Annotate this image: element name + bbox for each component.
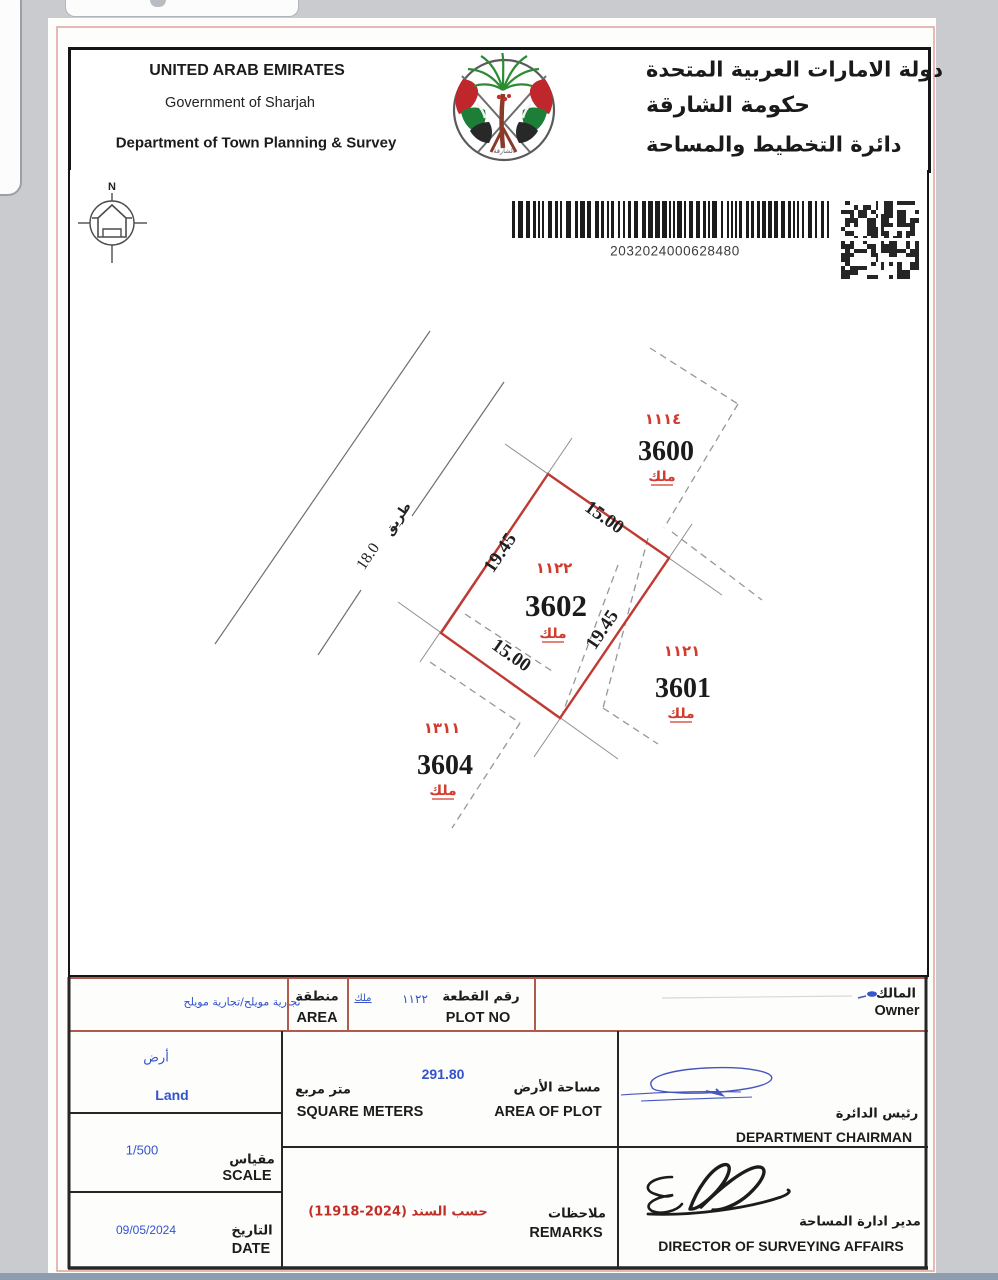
chairman-label-ar: رئيس الدائرة [836, 1108, 919, 1121]
sharjah-emblem: الشارقة [445, 53, 560, 168]
plot-area-unit-en: SQUARE METERS [297, 1105, 424, 1120]
bottom-ui-bar [0, 1273, 998, 1280]
header-title-en: UNITED ARAB EMIRATES [149, 63, 345, 79]
svg-text:3600: 3600 [638, 436, 694, 467]
plot-3602-labels: ١١٢٢ 3602 ملك [525, 559, 587, 642]
area-label-en: AREA [296, 1011, 337, 1026]
plot-3600-labels: ١١١٤ 3600 ملك [638, 410, 694, 485]
plot-3602-number: 3602 [525, 588, 587, 623]
remarks-value: حسب السند (2024-11918) [308, 1206, 488, 1219]
svg-text:١٣١١: ١٣١١ [424, 719, 461, 737]
director-label-en: DIRECTOR OF SURVEYING AFFAIRS [658, 1239, 904, 1253]
svg-text:ملك: ملك [429, 783, 456, 799]
chairman-label-en: DEPARTMENT CHAIRMAN [736, 1130, 912, 1144]
owner-label-ar: المالك [876, 988, 916, 1001]
director-label-ar: مدير ادارة المساحة [799, 1216, 921, 1229]
scan-left-card-artifact [0, 0, 22, 196]
dim-left: 19.45 [480, 529, 521, 576]
header-title-ar: دولة الامارات العربية المتحدة [646, 60, 943, 81]
plot-3602-tenure: ملك [539, 626, 566, 642]
land-value-ar: أرض [143, 1052, 169, 1065]
road-name-label: طريق [382, 500, 415, 539]
svg-text:3604: 3604 [417, 750, 473, 781]
svg-text:١١١٤: ١١١٤ [645, 410, 682, 428]
scale-label-ar: مقياس [229, 1154, 275, 1167]
svg-text:١١٢١: ١١٢١ [664, 642, 701, 660]
area-value: تجارية مويلح/تجارية مويلح [183, 997, 300, 1008]
svg-text:ملك: ملك [667, 706, 694, 722]
plot-area-label-en: AREA OF PLOT [494, 1105, 601, 1120]
header-dept-en: Department of Town Planning & Survey [116, 136, 397, 151]
road-lines [215, 331, 504, 655]
plot-no-value: ١١٢٢ [402, 993, 428, 1005]
svg-text:3601: 3601 [655, 673, 711, 704]
emblem-caption: الشارقة [493, 147, 514, 155]
date-label-en: DATE [232, 1242, 270, 1257]
land-value-en: Land [155, 1088, 188, 1102]
remarks-label-ar: ملاحظات [548, 1208, 606, 1221]
road-width-label: 18.0 [353, 540, 383, 573]
plot-3602-block: ١١٢٢ [536, 559, 573, 577]
scanned-survey-document: { "header": { "en1": "UNITED ARAB EMIRAT… [0, 0, 998, 1280]
plot-area-label-ar: مساحة الأرض [513, 1082, 600, 1095]
plot-map: N طريق 18.0 15.00 19.45 19.45 15.00 ١١ [68, 170, 928, 977]
north-compass-icon [78, 193, 147, 263]
header-govt-ar: حكومة الشارقة [646, 95, 810, 117]
plot-3601-labels: ١١٢١ 3601 ملك [655, 642, 711, 722]
dim-top: 15.00 [581, 497, 628, 539]
header-govt-en: Government of Sharjah [165, 96, 315, 111]
owner-label-en: Owner [874, 1004, 919, 1019]
remarks-label-en: REMARKS [529, 1226, 602, 1241]
dim-right: 19.45 [582, 606, 623, 653]
header-dept-ar: دائرة التخطيط والمساحة [646, 135, 902, 156]
scale-label-en: SCALE [222, 1169, 271, 1184]
date-value: 09/05/2024 [116, 1224, 176, 1236]
date-label-ar: التاريخ [231, 1225, 272, 1238]
area-label-ar: منطقة [295, 991, 338, 1004]
svg-text:ملك: ملك [648, 469, 675, 485]
plot-area-unit-ar: متر مربع [295, 1084, 351, 1097]
plot-area-value: 291.80 [422, 1067, 465, 1081]
north-label: N [108, 181, 116, 193]
scan-top-tab-artifact [65, 0, 299, 17]
plot-no-label-en: PLOT NO [446, 1011, 510, 1026]
plot-no-label-ar: رقم القطعة [442, 991, 519, 1004]
scale-value: 1/500 [126, 1144, 159, 1157]
plot-no-tenure: ملك [354, 994, 371, 1004]
plot-3604-labels: ١٣١١ 3604 ملك [417, 719, 473, 799]
